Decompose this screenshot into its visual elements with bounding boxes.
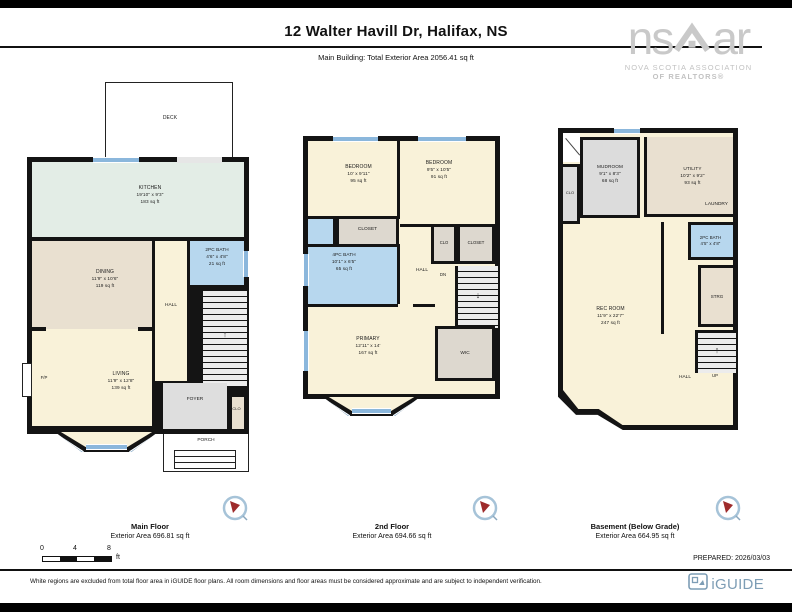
room-clo: CLO <box>431 224 457 264</box>
utility-label: UTILITY 10'2" x 9'2" 93 sq ft <box>665 166 720 186</box>
primary-wall-a <box>308 304 398 307</box>
dining-label: DINING 11'9" x 10'6" 119 sq ft <box>70 269 140 290</box>
compass-icon <box>222 495 250 523</box>
staircase: ↑ <box>200 291 247 387</box>
bath-label: 2PC BATH 4'5" x 4'8" <box>691 235 730 247</box>
room-strg: STRG <box>698 265 733 327</box>
wall-stub-right <box>138 327 152 331</box>
bedroom2-wall <box>400 224 433 227</box>
fireplace-label: F/P <box>35 375 53 380</box>
room-foyer <box>163 383 227 429</box>
kitchen-label: KITCHEN 19'10" x 9'3" 183 sq ft <box>115 185 185 206</box>
nsar-brand: ns ar <box>601 12 776 59</box>
foyer-label: FOYER <box>163 397 227 403</box>
primary-label: PRIMARY 12'11" x 14' 167 sq ft <box>333 336 403 357</box>
second-floor-building: BEDROOM 10' x 9'11" 95 sq ft BEDROOM 9'5… <box>303 136 500 399</box>
bath-label: 2PC BATH 4'6" x 4'8" 21 sq ft <box>190 247 244 267</box>
stair-arrow-icon: ↓ <box>458 290 498 300</box>
hall-wall-lower <box>152 317 155 381</box>
hall-label: HALL <box>670 375 700 381</box>
bath-window-icon <box>303 254 309 286</box>
nsar-brand-left: ns <box>628 18 673 59</box>
bay-window-center-icon <box>86 444 127 450</box>
house-icon <box>673 12 711 59</box>
fireplace <box>22 363 32 397</box>
top-border-bar <box>0 0 792 8</box>
bedroom2-window-icon <box>418 136 466 142</box>
strg-label: STRG <box>701 294 733 299</box>
porch: PORCH <box>163 434 249 472</box>
closet-label: CLO <box>228 407 245 412</box>
mudroom-label: MUDROOM 9'1" x 8'3" 68 sq ft <box>582 164 638 184</box>
bottom-border-bar <box>0 603 792 612</box>
bay-window <box>55 432 158 452</box>
scale-bar-segments <box>42 556 112 562</box>
main-floor-caption: Main Floor Exterior Area 696.81 sq ft <box>40 522 260 540</box>
clo-label: CLO <box>434 240 454 245</box>
main-floor-building: KITCHEN 19'10" x 9'3" 183 sq ft DINING 1… <box>27 157 249 434</box>
basement-building: MUDROOM 9'1" x 8'3" 68 sq ft CLO UTILITY… <box>558 128 738 430</box>
closet2-label: CLOSET <box>460 240 492 245</box>
living-label: LIVING 11'9" x 12'8" 139 sq ft <box>86 371 156 392</box>
room-closet1: CLOSET <box>336 216 399 247</box>
staircase: ↓ <box>455 266 498 328</box>
compass-icon <box>715 495 743 523</box>
kitchen-window-icon <box>93 157 139 163</box>
iguide-icon <box>688 573 708 595</box>
compass-icon <box>472 495 500 523</box>
bay-window-center-icon <box>352 408 391 414</box>
basement-caption: Basement (Below Grade) Exterior Area 664… <box>525 522 745 540</box>
room-closet2: CLOSET <box>457 224 495 264</box>
nsar-line2: OF REALTORS® <box>601 72 776 81</box>
iguide-logo: iGUIDE <box>688 573 764 595</box>
second-floor-plan: BEDROOM 10' x 9'11" 95 sq ft BEDROOM 9'5… <box>303 133 503 423</box>
stair-arrow-icon: ↑ <box>698 345 736 355</box>
main-floor-plan: DECK KITCHEN 19'10" x 9'3" 183 sq ft DIN… <box>25 80 255 472</box>
porch-steps <box>174 450 236 469</box>
stair-arrow-icon: ↑ <box>203 329 247 339</box>
porch-label: PORCH <box>164 438 248 444</box>
deck-door-opening <box>177 157 222 163</box>
hall-wall-upper <box>152 241 155 297</box>
closet1-label: CLOSET <box>339 227 396 233</box>
bedroom-divider-wall <box>397 141 400 219</box>
up-label: UP <box>703 373 727 378</box>
hall-label: HALL <box>157 303 185 309</box>
bedroom1-window-icon <box>333 136 378 142</box>
floorplan-page: 12 Walter Havill Dr, Halifax, NS Main Bu… <box>0 0 792 612</box>
prepared-date: PREPARED: 2026/03/03 <box>693 555 770 562</box>
rec-room-wall <box>661 222 664 334</box>
staircase: ↑ <box>695 330 736 373</box>
nsar-logo: ns ar NOVA SCOTIA ASSOCIATION OF REALTOR… <box>601 12 776 81</box>
bath-label: 4PC BATH 10'1" x 6'5" 65 sq ft <box>313 252 375 272</box>
room-2pc-bath: 2PC BATH 4'5" x 4'8" <box>688 222 733 260</box>
basement-plan: MUDROOM 9'1" x 8'3" 68 sq ft CLO UTILITY… <box>556 122 742 434</box>
nsar-line1: NOVA SCOTIA ASSOCIATION <box>601 63 776 72</box>
room-clo: CLO <box>563 164 580 224</box>
mudroom-window-icon <box>614 128 640 134</box>
hall-area <box>155 241 187 381</box>
primary-window-icon <box>303 331 309 371</box>
dn-label: DN <box>433 272 453 277</box>
bath-upper-area <box>308 219 336 244</box>
rec-room-label: REC ROOM 11'9" x 22'7" 247 sq ft <box>573 306 648 327</box>
footer-rule <box>0 569 792 571</box>
nsar-brand-right: ar <box>712 18 749 59</box>
primary-wall-b <box>413 304 435 307</box>
iguide-wordmark: iGUIDE <box>711 576 764 593</box>
wic-label: WIC <box>438 351 492 357</box>
wall-stub-left <box>32 327 46 331</box>
bedroom2-label: BEDROOM 9'5" x 10'5" 91 sq ft <box>403 160 475 181</box>
deck-label: DECK <box>106 115 234 122</box>
bay-window <box>323 397 420 416</box>
disclaimer-text: White regions are excluded from total fl… <box>30 578 650 585</box>
room-utility: UTILITY 10'2" x 9'2" 93 sq ft LAUNDRY <box>644 137 733 217</box>
laundry-label: LAUNDRY <box>688 202 728 208</box>
deck: DECK <box>105 82 233 159</box>
bedroom1-label: BEDROOM 10' x 9'11" 95 sq ft <box>321 164 396 185</box>
room-wic: WIC <box>435 326 495 381</box>
bath-wall-bottom <box>187 285 244 288</box>
clo-label: CLO <box>563 191 577 196</box>
second-floor-caption: 2nd Floor Exterior Area 694.66 sq ft <box>282 522 502 540</box>
